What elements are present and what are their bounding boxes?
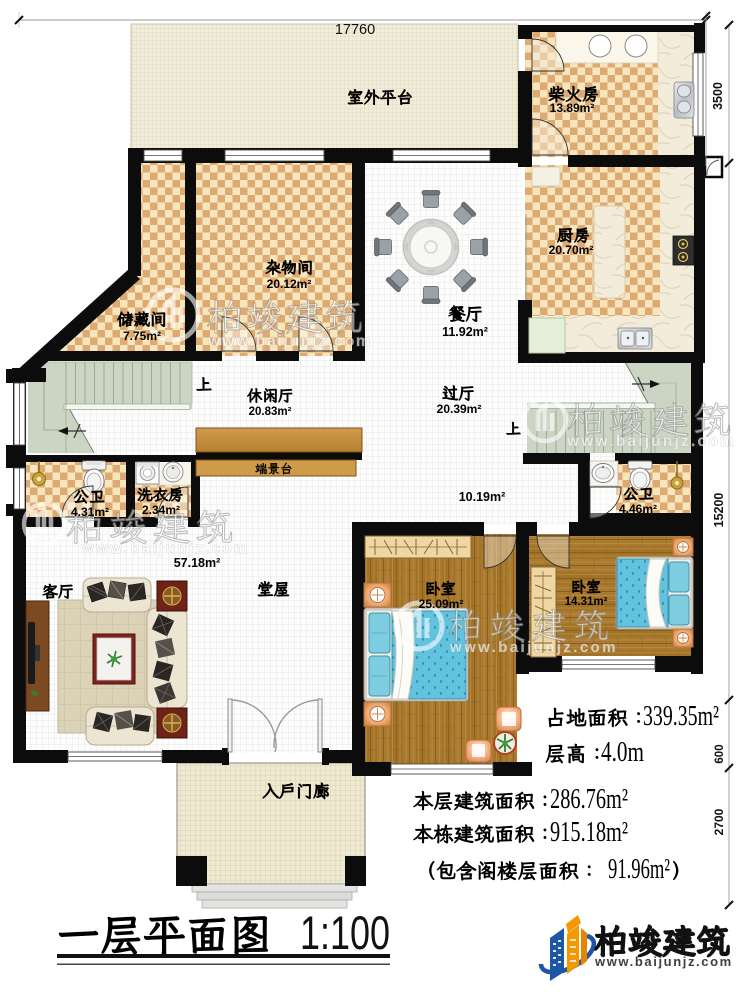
svg-text:13.89m²: 13.89m² — [550, 101, 595, 115]
svg-text:4.0m: 4.0m — [601, 736, 644, 768]
svg-text:www.baijunjz.com: www.baijunjz.com — [566, 433, 736, 450]
svg-text:15200: 15200 — [712, 493, 726, 528]
svg-text:4.46m²: 4.46m² — [619, 502, 657, 516]
svg-text:1:100: 1:100 — [300, 906, 390, 959]
svg-text:7.75m²: 7.75m² — [123, 329, 161, 343]
svg-text:3500: 3500 — [711, 82, 725, 110]
svg-text:11.92m²: 11.92m² — [442, 325, 488, 339]
svg-text:10.19m²: 10.19m² — [459, 490, 506, 504]
svg-text:www.baijunjz.com: www.baijunjz.com — [594, 954, 733, 969]
svg-text:339.35m²: 339.35m² — [643, 700, 719, 732]
svg-text:600: 600 — [714, 744, 726, 763]
svg-text:915.18m²: 915.18m² — [550, 816, 628, 848]
svg-text:20.70m²: 20.70m² — [549, 243, 594, 257]
svg-text:14.31m²: 14.31m² — [565, 596, 608, 608]
svg-text:20.83m²: 20.83m² — [249, 406, 292, 418]
svg-text:www.baijunjz.com: www.baijunjz.com — [449, 639, 618, 656]
svg-text:25.09m²: 25.09m² — [419, 597, 464, 611]
svg-text:www.baijunjz.com: www.baijunjz.com — [81, 540, 250, 557]
svg-text:2700: 2700 — [712, 808, 726, 835]
svg-text:17760: 17760 — [335, 22, 375, 38]
svg-text:57.18m²: 57.18m² — [174, 556, 221, 570]
svg-text:2.34m²: 2.34m² — [142, 503, 180, 517]
svg-text:www.baijunjz.com: www.baijunjz.com — [207, 333, 372, 350]
svg-text:4.31m²: 4.31m² — [71, 505, 109, 519]
svg-text:91.96m²: 91.96m² — [608, 853, 670, 885]
svg-text:20.12m²: 20.12m² — [267, 277, 312, 291]
svg-text:20.39m²: 20.39m² — [437, 402, 482, 416]
svg-text:286.76m²: 286.76m² — [550, 783, 628, 815]
